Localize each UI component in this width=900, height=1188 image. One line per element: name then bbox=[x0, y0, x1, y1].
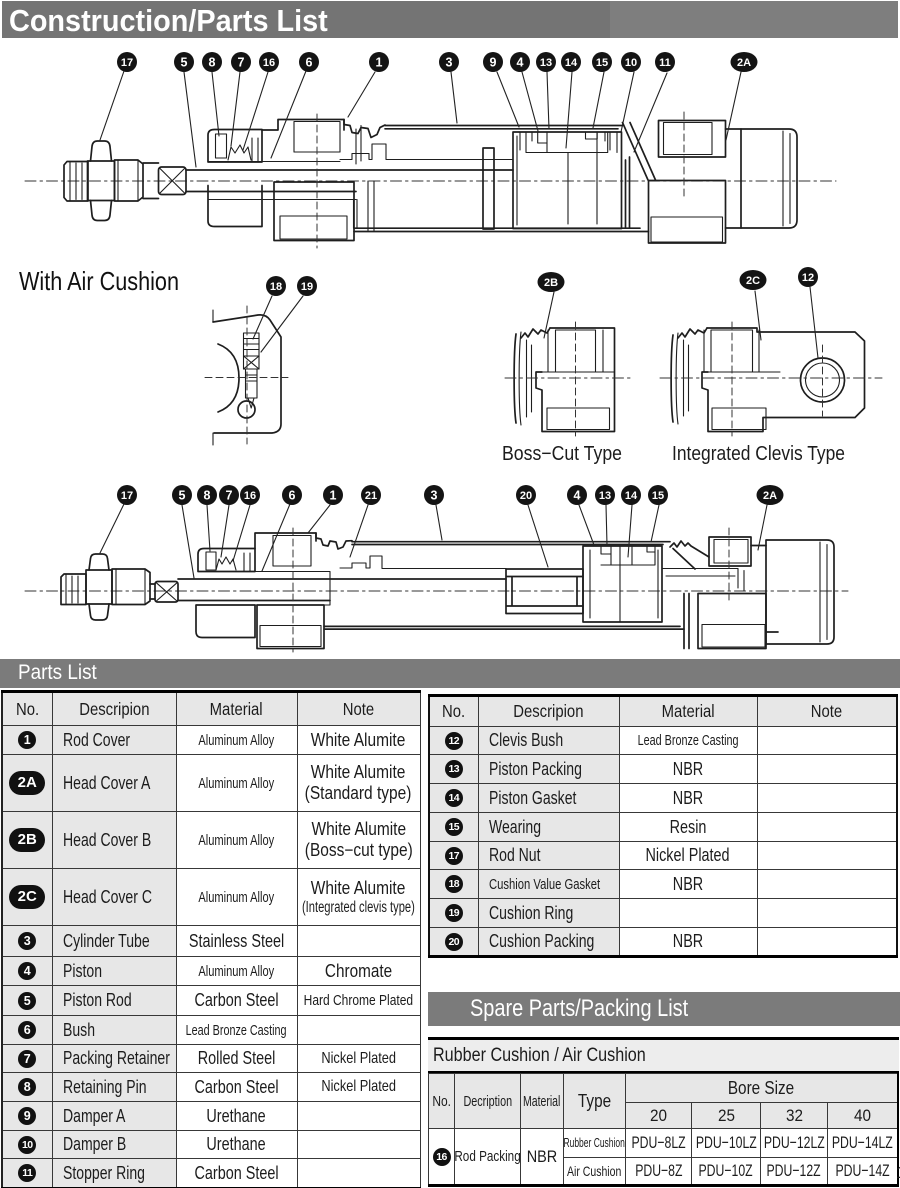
svg-text:10: 10 bbox=[625, 57, 637, 69]
svg-text:8: 8 bbox=[209, 56, 216, 70]
svg-text:13: 13 bbox=[599, 490, 611, 502]
svg-text:21: 21 bbox=[365, 490, 377, 502]
svg-text:17: 17 bbox=[121, 57, 133, 69]
svg-text:11: 11 bbox=[659, 57, 671, 69]
svg-text:8: 8 bbox=[204, 489, 211, 503]
svg-text:7: 7 bbox=[238, 56, 245, 70]
svg-text:19: 19 bbox=[301, 281, 313, 293]
svg-text:7: 7 bbox=[226, 489, 233, 503]
svg-text:17: 17 bbox=[121, 490, 133, 502]
svg-text:Boss−Cut Type: Boss−Cut Type bbox=[502, 443, 622, 465]
svg-text:16: 16 bbox=[244, 490, 256, 502]
svg-text:13: 13 bbox=[540, 57, 552, 69]
svg-text:5: 5 bbox=[179, 489, 186, 503]
svg-text:15: 15 bbox=[596, 57, 608, 69]
svg-text:4: 4 bbox=[517, 56, 524, 70]
svg-text:2B: 2B bbox=[544, 277, 558, 289]
svg-text:9: 9 bbox=[490, 56, 497, 70]
svg-text:16: 16 bbox=[263, 57, 275, 69]
svg-text:5: 5 bbox=[181, 56, 188, 70]
svg-text:2C: 2C bbox=[746, 275, 760, 287]
svg-text:Integrated Clevis Type: Integrated Clevis Type bbox=[672, 443, 845, 465]
svg-text:3: 3 bbox=[431, 489, 438, 503]
svg-text:2A: 2A bbox=[763, 490, 777, 502]
svg-text:1: 1 bbox=[376, 56, 383, 70]
svg-text:1: 1 bbox=[330, 489, 337, 503]
svg-text:3: 3 bbox=[446, 56, 453, 70]
svg-text:14: 14 bbox=[565, 57, 578, 69]
svg-text:2A: 2A bbox=[737, 57, 751, 69]
svg-text:6: 6 bbox=[289, 489, 296, 503]
svg-text:18: 18 bbox=[270, 281, 282, 293]
svg-text:With Air Cushion: With Air Cushion bbox=[19, 266, 179, 296]
svg-text:14: 14 bbox=[625, 490, 638, 502]
svg-text:15: 15 bbox=[652, 490, 664, 502]
svg-text:12: 12 bbox=[802, 272, 814, 284]
svg-text:4: 4 bbox=[574, 489, 581, 503]
svg-text:20: 20 bbox=[520, 490, 532, 502]
svg-text:6: 6 bbox=[306, 56, 313, 70]
